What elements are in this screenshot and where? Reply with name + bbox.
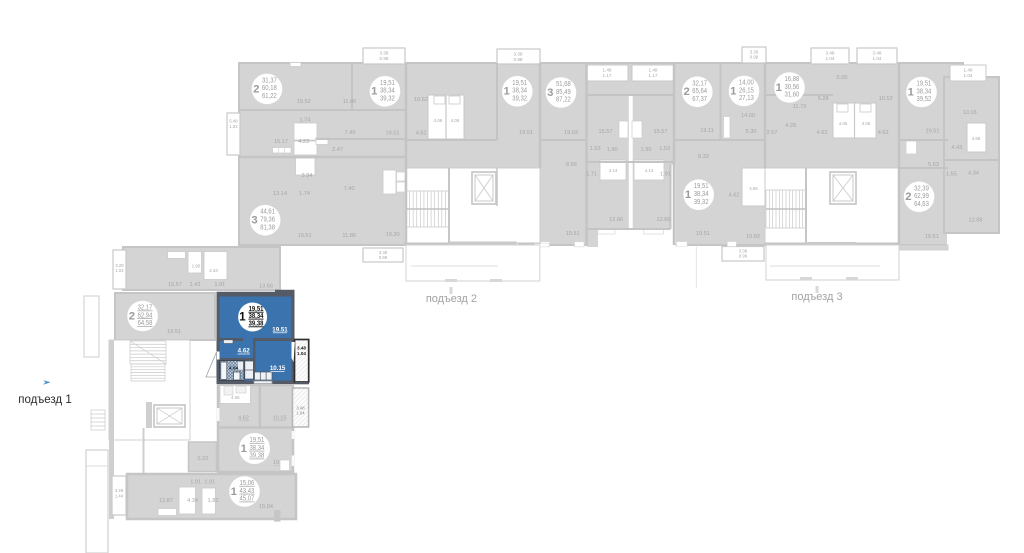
svg-text:19.51: 19.51 [298,233,312,239]
svg-text:0.96: 0.96 [739,254,748,259]
svg-text:4.06: 4.06 [839,121,848,126]
svg-text:10.82: 10.82 [746,234,760,240]
svg-text:1.04: 1.04 [297,351,306,356]
svg-text:4.66: 4.66 [972,136,981,141]
svg-text:3: 3 [547,87,553,99]
svg-text:19.51: 19.51 [386,131,400,137]
svg-text:13.14: 13.14 [273,191,287,197]
svg-text:1.04: 1.04 [115,268,124,273]
svg-text:5.22: 5.22 [198,456,209,462]
svg-text:12.88: 12.88 [969,217,983,223]
svg-text:31,60: 31,60 [785,90,800,99]
svg-text:3.48: 3.48 [873,51,882,56]
svg-text:1: 1 [730,85,736,97]
svg-text:1.91: 1.91 [204,480,215,486]
svg-text:4.62: 4.62 [817,130,828,136]
svg-text:4.62: 4.62 [729,193,740,199]
svg-text:39,32: 39,32 [512,93,527,102]
svg-text:19.03: 19.03 [564,130,578,136]
svg-text:13.66: 13.66 [259,284,273,290]
svg-text:39,38: 39,38 [250,451,265,460]
svg-text:39,52: 39,52 [917,94,932,103]
svg-text:3: 3 [251,215,257,227]
svg-text:19.52: 19.52 [297,99,311,105]
svg-text:3.38: 3.38 [514,52,523,57]
svg-text:4.06: 4.06 [862,121,871,126]
svg-text:1.53: 1.53 [590,146,601,152]
svg-text:19.11: 19.11 [700,128,714,134]
svg-text:19.51: 19.51 [167,329,181,335]
svg-text:1.91: 1.91 [214,282,225,288]
svg-text:1.04: 1.04 [296,411,305,416]
svg-text:2: 2 [253,83,259,95]
svg-text:12.87: 12.87 [159,498,173,504]
svg-text:1.17: 1.17 [649,73,658,78]
svg-text:4.06: 4.06 [451,118,460,123]
svg-text:0.98: 0.98 [514,57,523,62]
svg-text:8.56: 8.56 [566,162,577,168]
svg-text:19.51: 19.51 [566,231,580,237]
svg-text:10.16: 10.16 [963,110,977,116]
svg-text:10.52: 10.52 [879,96,893,102]
svg-text:3.28: 3.28 [115,488,124,493]
svg-text:14.00: 14.00 [741,113,755,119]
svg-text:5.28: 5.28 [818,96,829,102]
svg-text:4.23: 4.23 [298,139,309,145]
svg-text:1.04: 1.04 [873,56,882,61]
svg-text:11.86: 11.86 [343,99,357,105]
svg-text:1.82: 1.82 [208,498,219,504]
svg-text:87,22: 87,22 [556,95,571,104]
svg-text:67,37: 67,37 [692,94,707,103]
svg-text:2.47: 2.47 [332,147,343,153]
svg-text:3.48: 3.48 [297,346,306,351]
svg-text:1.43: 1.43 [190,282,201,288]
svg-text:1.55: 1.55 [946,172,957,178]
svg-text:4.62: 4.62 [878,130,889,136]
svg-text:19.51: 19.51 [925,234,939,240]
svg-text:1: 1 [908,86,914,98]
svg-text:19.51: 19.51 [519,130,533,136]
svg-text:2: 2 [129,310,135,322]
svg-text:4.43: 4.43 [951,145,962,151]
svg-text:15.57: 15.57 [654,129,668,135]
svg-text:39,38: 39,38 [249,319,264,328]
svg-text:1.74: 1.74 [300,118,311,124]
svg-text:10.62: 10.62 [414,97,428,103]
svg-text:8.32: 8.32 [698,154,709,160]
svg-text:1.53: 1.53 [659,146,670,152]
svg-text:1.49: 1.49 [603,68,612,73]
svg-text:1: 1 [371,86,377,98]
svg-text:5.30: 5.30 [746,129,757,135]
svg-text:5.48: 5.48 [229,119,238,124]
svg-text:подъезд 2: подъезд 2 [426,293,477,305]
svg-text:7.40: 7.40 [345,130,356,136]
svg-text:1.17: 1.17 [603,73,612,78]
svg-text:5.00: 5.00 [837,75,848,81]
svg-text:1.04: 1.04 [964,73,973,78]
svg-text:19.30: 19.30 [386,232,400,238]
svg-text:подъезд 3: подъезд 3 [791,291,842,303]
svg-text:12.66: 12.66 [609,217,623,223]
svg-text:61,22: 61,22 [262,91,277,100]
svg-text:3.48: 3.48 [826,51,835,56]
svg-text:2: 2 [683,86,689,98]
svg-text:2: 2 [905,191,911,203]
svg-text:45,07: 45,07 [240,494,255,503]
svg-text:12.66: 12.66 [657,217,671,223]
svg-text:15.17: 15.17 [274,139,288,145]
svg-text:1: 1 [776,82,782,94]
svg-text:1: 1 [503,86,509,98]
svg-text:27,13: 27,13 [739,93,754,102]
svg-text:1: 1 [231,486,237,498]
svg-text:1.49: 1.49 [964,68,973,73]
svg-text:3.94: 3.94 [302,173,313,179]
svg-text:1.91: 1.91 [190,480,201,486]
svg-text:1.49: 1.49 [649,68,658,73]
svg-text:3.38: 3.38 [380,51,389,56]
svg-text:39,32: 39,32 [380,93,395,102]
svg-text:4.14: 4.14 [645,168,654,173]
svg-text:1.91: 1.91 [660,172,671,178]
svg-text:4.06: 4.06 [434,118,443,123]
svg-text:4.28: 4.28 [785,123,796,129]
svg-text:15.57: 15.57 [599,129,613,135]
svg-text:4.06: 4.06 [231,395,240,400]
svg-text:5.63: 5.63 [928,162,939,168]
svg-text:1.71: 1.71 [586,172,597,178]
svg-text:1.90: 1.90 [641,147,652,153]
svg-text:39,32: 39,32 [694,197,709,206]
svg-text:1.90: 1.90 [192,264,201,269]
svg-text:1: 1 [239,309,246,323]
svg-text:1.04: 1.04 [826,56,835,61]
svg-text:4.14: 4.14 [609,168,618,173]
svg-text:2.57: 2.57 [767,130,778,136]
svg-text:1: 1 [685,189,691,201]
svg-text:64,63: 64,63 [914,199,929,208]
svg-text:11.86: 11.86 [342,233,356,239]
svg-text:64,58: 64,58 [138,318,153,327]
svg-text:19.51: 19.51 [926,129,940,135]
svg-text:4.66: 4.66 [749,186,758,191]
svg-text:19.51: 19.51 [696,231,710,237]
svg-text:0.99: 0.99 [750,55,759,60]
svg-text:1.44: 1.44 [115,494,124,499]
svg-text:81,38: 81,38 [260,222,275,231]
svg-text:подъезд 1: подъезд 1 [18,394,71,406]
svg-text:1.74: 1.74 [299,191,310,197]
svg-text:1: 1 [241,443,247,455]
svg-text:15.57: 15.57 [168,282,182,288]
svg-text:4.34: 4.34 [209,268,218,273]
svg-text:4.34: 4.34 [187,498,198,504]
svg-text:4.62: 4.62 [416,131,427,137]
svg-text:0.98: 0.98 [380,56,389,61]
svg-text:1.90: 1.90 [607,147,618,153]
svg-text:4.34: 4.34 [968,171,979,177]
svg-text:4.04: 4.04 [229,366,239,372]
svg-text:11.73: 11.73 [793,104,807,110]
svg-text:15.04: 15.04 [259,504,273,510]
svg-text:0.98: 0.98 [379,255,388,260]
svg-text:1.02: 1.02 [229,124,238,129]
svg-text:7.40: 7.40 [344,186,355,192]
